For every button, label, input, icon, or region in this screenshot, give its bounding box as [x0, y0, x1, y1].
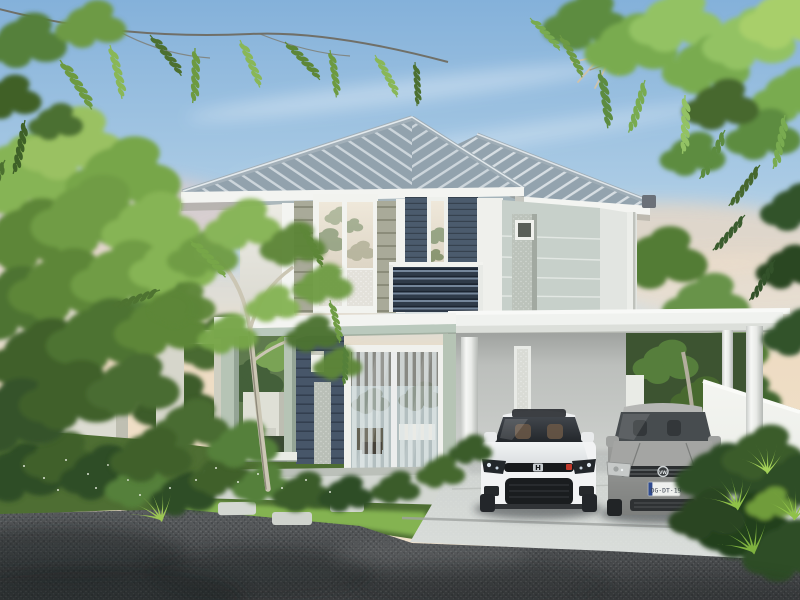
- side-mirror-right: [581, 432, 594, 442]
- vent-window: [515, 220, 534, 240]
- gutter-end-cap: [642, 195, 656, 208]
- brand-badge-letters: VW: [659, 470, 667, 475]
- wheel-left: [480, 494, 495, 512]
- sunroof: [512, 409, 566, 418]
- license-plate-text: DG·DT·19: [651, 487, 682, 495]
- wheel-right: [582, 494, 597, 512]
- side-mirror-left: [484, 432, 497, 442]
- balcony-louver: [389, 262, 483, 312]
- wheel-left: [607, 499, 622, 516]
- rendering-canvas: H VW: [0, 0, 800, 600]
- right-wing-wall: [502, 200, 637, 318]
- brand-badge-letter: H: [535, 464, 541, 472]
- red-accent-badge: [566, 464, 572, 470]
- front-grille: H: [504, 463, 574, 472]
- window-upper-narrow: [425, 197, 450, 270]
- carport-roof: [448, 308, 790, 334]
- hood: [489, 442, 589, 463]
- scene-svg: H VW: [0, 0, 800, 600]
